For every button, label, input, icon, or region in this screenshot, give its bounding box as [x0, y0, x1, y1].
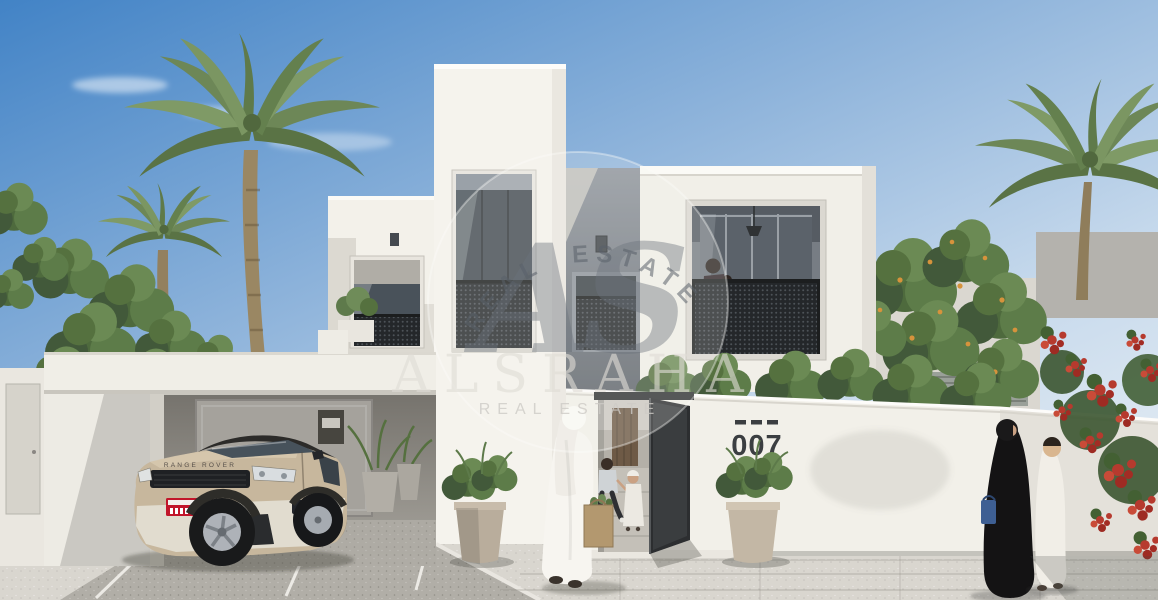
- handbag: [981, 500, 996, 524]
- car-wheel-front: [189, 498, 255, 566]
- watermark-brand: ALSRAHA: [391, 345, 757, 405]
- car-wheel-rear: [293, 493, 343, 547]
- side-door: [6, 384, 40, 514]
- house-number-dashes: [735, 420, 746, 425]
- scene-image: 007: [0, 0, 1158, 600]
- roof-unit: [318, 330, 348, 354]
- car-hood-text: RANGE ROVER: [164, 462, 236, 469]
- watermark-subtext: REAL ESTATE: [479, 401, 662, 418]
- wall-lamp-left: [390, 233, 399, 246]
- architectural-rendering: 007: [0, 0, 1158, 600]
